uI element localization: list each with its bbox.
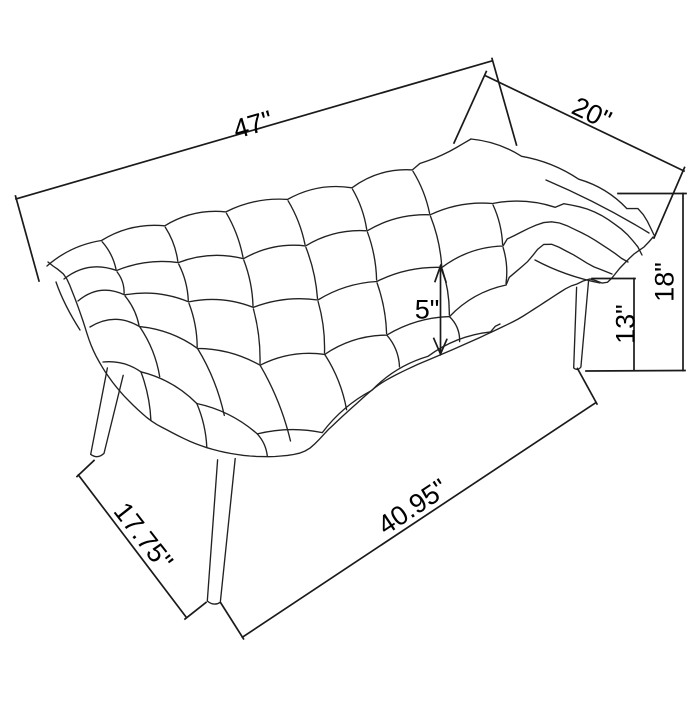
svg-text:18": 18": [650, 262, 680, 302]
svg-text:13": 13": [611, 304, 641, 344]
svg-text:5": 5": [415, 294, 440, 324]
